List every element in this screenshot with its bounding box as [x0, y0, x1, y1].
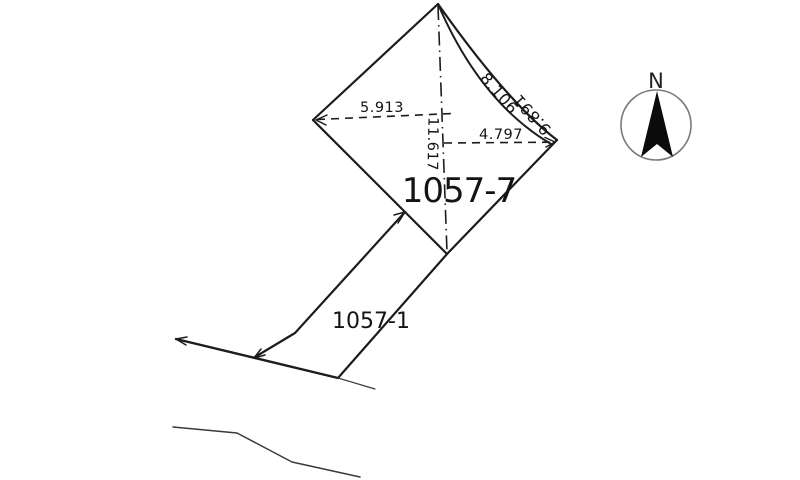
survey-map-canvas: 1057-7 1057-1 5.913 4.797 11.617 8.106 9… [0, 0, 800, 480]
compass: N [621, 69, 691, 160]
parcel-label-1057-7: 1057-7 [402, 171, 516, 211]
map-labels: 1057-7 1057-1 5.913 4.797 11.617 8.106 9… [332, 69, 555, 334]
strip-edge-west [255, 212, 405, 357]
dimension-label-west: 5.913 [360, 100, 404, 116]
dimension-label-vertical: 11.617 [424, 117, 441, 171]
north-arrow-icon [641, 91, 673, 157]
road-boundary-extension [338, 378, 375, 389]
parcel-label-1057-1: 1057-1 [332, 309, 410, 334]
survey-map-drawing: 1057-7 1057-1 5.913 4.797 11.617 8.106 9… [0, 0, 800, 480]
parcel-1057-1-boundary [176, 212, 447, 389]
road-boundary-lower [173, 427, 360, 477]
road-boundary-upper [176, 339, 338, 378]
dimension-label-east: 4.797 [479, 127, 523, 143]
north-label: N [648, 69, 664, 93]
